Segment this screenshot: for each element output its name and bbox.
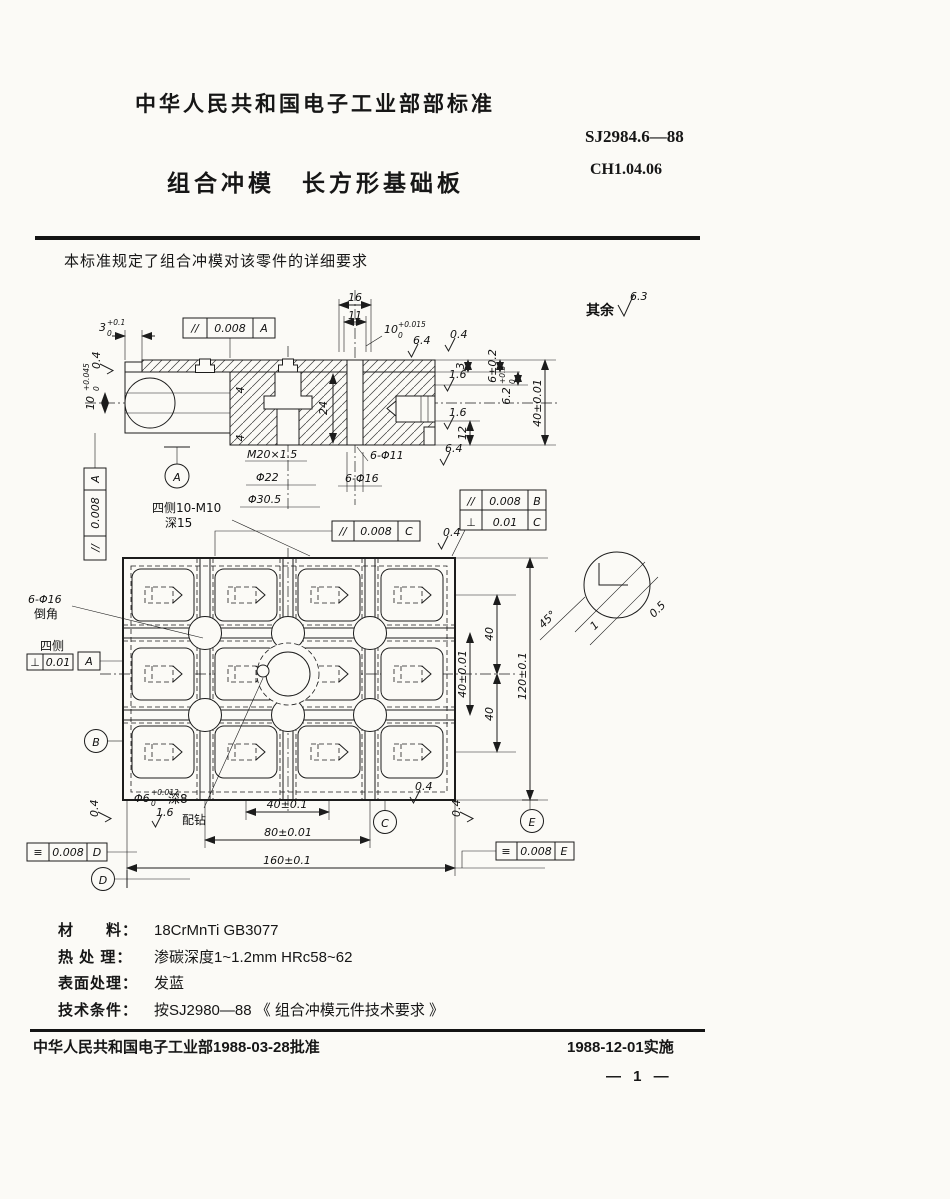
svg-text:10: 10 bbox=[84, 396, 97, 410]
dim-40-section: 40±0.01 bbox=[531, 379, 544, 427]
approval-note: 中华人民共和国电子工业部1988-03-28批准 bbox=[33, 1036, 320, 1057]
svg-text:1.6: 1.6 bbox=[449, 368, 467, 381]
detail-dim-1: 1 bbox=[587, 618, 601, 632]
datum-d: D bbox=[92, 868, 191, 891]
svg-text:A: A bbox=[172, 471, 181, 484]
svg-text:D: D bbox=[99, 874, 107, 887]
spec-value: 发蓝 bbox=[154, 975, 184, 992]
note-6phi16: 6-Φ16 bbox=[28, 593, 62, 606]
svg-text:0.4: 0.4 bbox=[450, 328, 468, 341]
svg-text:≡: ≡ bbox=[501, 845, 510, 858]
svg-text:D: D bbox=[93, 846, 101, 859]
dim-10-sub: 0 bbox=[398, 331, 403, 340]
spec-row-technical-conditions: 技术条件：按SJ2980—88 《 组合冲模元件技术要求 》 bbox=[58, 998, 444, 1025]
svg-text:0.01: 0.01 bbox=[46, 656, 71, 669]
plan-view bbox=[100, 548, 516, 814]
spec-label: 技术条件： bbox=[58, 998, 154, 1025]
svg-text:四侧: 四侧 bbox=[40, 639, 64, 653]
svg-text:1.6: 1.6 bbox=[449, 406, 467, 419]
spec-row-surface-treatment: 表面处理：发蓝 bbox=[58, 971, 444, 998]
tolerance-frame-d: ≡ 0.008 D bbox=[27, 843, 137, 861]
svg-text:0.01: 0.01 bbox=[493, 516, 518, 529]
callout-phi22: Φ22 bbox=[256, 471, 279, 484]
roughness-1_6-a: 1.6 bbox=[444, 368, 467, 391]
svg-text:C: C bbox=[381, 817, 389, 830]
roughness-0_4-left-edge: 0.4 bbox=[88, 800, 111, 823]
callout-m20: M20×1.5 bbox=[247, 448, 297, 461]
document-page: 中华人民共和国电子工业部部标准 SJ2984.6—88 CH1.04.06 组合… bbox=[0, 0, 950, 1199]
svg-text:深8: 深8 bbox=[168, 792, 188, 806]
svg-text:⊥: ⊥ bbox=[466, 516, 476, 529]
svg-text:A: A bbox=[89, 475, 102, 484]
svg-text:E: E bbox=[561, 845, 568, 858]
datum-c: C bbox=[374, 800, 397, 834]
svg-text:0.4: 0.4 bbox=[90, 352, 103, 370]
svg-text:6.3: 6.3 bbox=[630, 290, 648, 303]
page-number: — 1 — bbox=[606, 1068, 673, 1085]
tolerance-frame-b-c: // 0.008 B ⊥ 0.01 C bbox=[452, 490, 546, 556]
svg-text:E: E bbox=[529, 816, 536, 829]
dim-40v: 40±0.01 bbox=[456, 650, 469, 698]
dim-40h: 40±0.1 bbox=[267, 798, 308, 811]
svg-text:C: C bbox=[405, 525, 413, 538]
callout-6phi16: 6-Φ16 bbox=[345, 472, 379, 485]
svg-text:≡: ≡ bbox=[33, 846, 42, 859]
note-m10: 四侧10-M10 bbox=[152, 501, 221, 515]
svg-text:0.008: 0.008 bbox=[360, 525, 392, 538]
dim-24: 24 bbox=[317, 401, 330, 415]
svg-text:0.4: 0.4 bbox=[88, 800, 101, 818]
spec-value: 渗碳深度1~1.2mm HRc58~62 bbox=[154, 949, 352, 966]
spec-row-heat-treatment: 热 处 理：渗碳深度1~1.2mm HRc58~62 bbox=[58, 945, 444, 972]
detail-dim-0_5: 0.5 bbox=[647, 599, 669, 621]
bottom-divider bbox=[30, 1029, 705, 1032]
svg-text:A: A bbox=[259, 322, 268, 335]
dim-40a: 40 bbox=[483, 627, 496, 641]
note-chamfer: 倒角 bbox=[34, 607, 58, 621]
dim-10-left: 10 +0.045 0 bbox=[82, 363, 101, 410]
note-m10-depth: 深15 bbox=[165, 516, 192, 530]
tolerance-frame-plan-a: 四侧 ⊥ 0.01 A bbox=[27, 639, 123, 670]
dim-4-b: 4 bbox=[234, 435, 247, 442]
effective-date: 1988-12-01实施 bbox=[567, 1036, 674, 1057]
dim-3-top: 3 bbox=[99, 321, 106, 334]
callout-phi305: Φ30.5 bbox=[248, 493, 281, 506]
svg-text:6.2: 6.2 bbox=[500, 387, 513, 405]
svg-text:B: B bbox=[533, 495, 541, 508]
dim-16: 16 bbox=[348, 291, 362, 304]
dim-160: 160±0.1 bbox=[263, 854, 311, 867]
surface-finish-note: 其余 6.3 bbox=[586, 290, 648, 319]
svg-text:0.4: 0.4 bbox=[450, 800, 463, 818]
svg-text:0.008: 0.008 bbox=[214, 322, 246, 335]
roughness-6_4-top: 6.4 bbox=[408, 334, 431, 357]
svg-text:配钻: 配钻 bbox=[182, 812, 206, 827]
svg-text:0.4: 0.4 bbox=[443, 526, 461, 539]
dim-12: 12 bbox=[456, 426, 469, 440]
spec-row-material: 材 料：18CrMnTi GB3077 bbox=[58, 918, 444, 945]
section-view bbox=[85, 290, 558, 512]
spec-label: 材 料： bbox=[58, 918, 154, 945]
svg-text:A: A bbox=[84, 655, 93, 668]
dim-40b: 40 bbox=[483, 707, 496, 721]
roughness-0_4-right: 0.4 bbox=[445, 328, 468, 351]
svg-text:0: 0 bbox=[92, 386, 101, 391]
dim-4-a: 4 bbox=[234, 387, 247, 394]
dim-3-sup: +0.1 bbox=[107, 318, 125, 327]
spec-table: 材 料：18CrMnTi GB3077 热 处 理：渗碳深度1~1.2mm HR… bbox=[58, 918, 444, 1024]
spec-value: 18CrMnTi GB3077 bbox=[154, 922, 279, 939]
dim-45deg: 45° bbox=[536, 608, 559, 631]
dim-10-sup: +0.015 bbox=[398, 320, 426, 329]
corner-detail: 1 0.5 bbox=[575, 552, 668, 645]
svg-text:6.4: 6.4 bbox=[413, 334, 431, 347]
tolerance-frame-e: ≡ 0.008 E bbox=[462, 842, 574, 868]
svg-text://: // bbox=[466, 495, 476, 508]
svg-text://: // bbox=[190, 322, 200, 335]
svg-text:C: C bbox=[533, 516, 541, 529]
svg-text:0.008: 0.008 bbox=[52, 846, 84, 859]
svg-text://: // bbox=[89, 543, 102, 553]
dim-120: 120±0.1 bbox=[516, 652, 529, 700]
tolerance-frame-top-a: // 0.008 A bbox=[183, 318, 275, 358]
dim-11: 11 bbox=[348, 309, 362, 322]
dim-10: 10 bbox=[384, 323, 398, 336]
callout-6phi11: 6-Φ11 bbox=[370, 449, 404, 462]
svg-text:6.4: 6.4 bbox=[445, 442, 463, 455]
roughness-0_4-left: 0.4 bbox=[90, 352, 113, 375]
svg-text:0.008: 0.008 bbox=[489, 495, 521, 508]
svg-text:0.4: 0.4 bbox=[415, 780, 433, 793]
roughness-6_4-b: 6.4 bbox=[440, 442, 463, 465]
svg-text:0: 0 bbox=[508, 379, 517, 384]
svg-text:1.6: 1.6 bbox=[156, 806, 174, 819]
svg-text://: // bbox=[338, 525, 348, 538]
svg-text:+0.3: +0.3 bbox=[498, 366, 507, 384]
svg-text:0.008: 0.008 bbox=[89, 497, 102, 529]
svg-text:B: B bbox=[92, 736, 100, 749]
roughness-0_4-right-edge: 0.4 bbox=[450, 800, 473, 823]
dim-3-sub: 0 bbox=[107, 329, 112, 338]
spec-label: 表面处理： bbox=[58, 971, 154, 998]
svg-text:0.008: 0.008 bbox=[520, 845, 552, 858]
svg-text:Φ6: Φ6 bbox=[134, 792, 150, 805]
svg-text:⊥: ⊥ bbox=[30, 656, 40, 669]
datum-a: A bbox=[164, 447, 190, 488]
datum-e: E bbox=[521, 800, 544, 833]
spec-label: 热 处 理： bbox=[58, 945, 154, 972]
tolerance-frame-left-a: A 0.008 // bbox=[84, 433, 106, 560]
datum-b: B bbox=[85, 730, 124, 753]
roughness-1_6-b: 1.6 bbox=[444, 406, 467, 429]
dim-80: 80±0.01 bbox=[264, 826, 312, 839]
svg-text:其余: 其余 bbox=[586, 302, 615, 319]
spec-value: 按SJ2980—88 《 组合冲模元件技术要求 》 bbox=[154, 1002, 444, 1019]
